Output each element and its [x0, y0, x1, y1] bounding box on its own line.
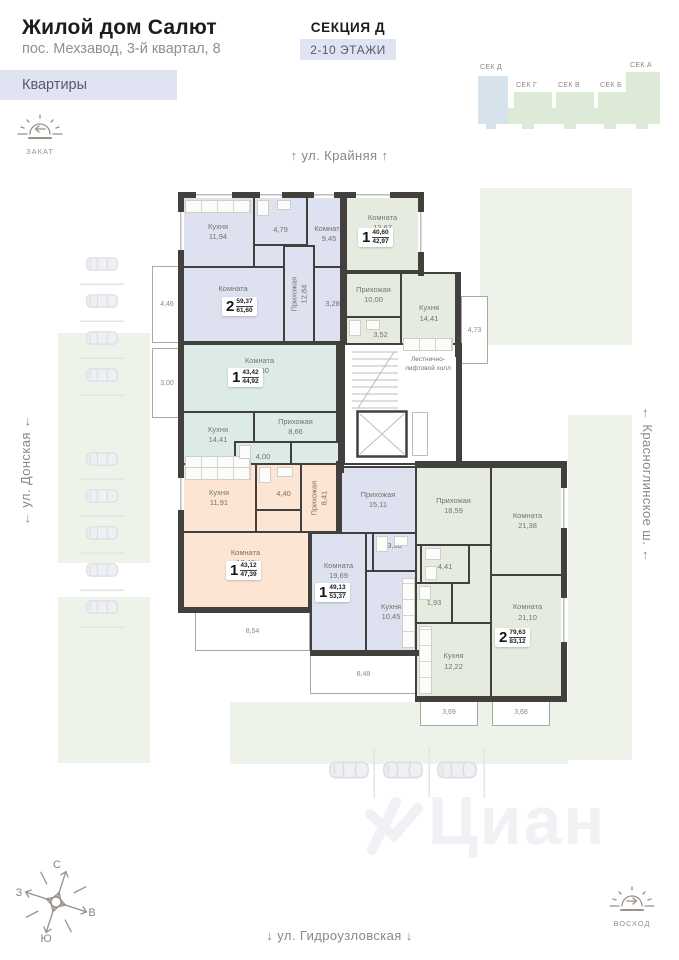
page-title: Жилой дом Салют — [22, 16, 217, 40]
window — [356, 192, 390, 198]
balcony: 4,73 — [461, 296, 488, 364]
compass-west-label: З — [16, 887, 23, 899]
car-icon — [85, 293, 119, 309]
street-bottom: ↓ ул. Гидроузловская ↓ — [0, 928, 679, 943]
minimap-notch — [522, 124, 534, 129]
minimap-notch — [604, 124, 616, 129]
floor-plan-page: Жилой дом Салют пос. Мехзавод, 3-й кварт… — [0, 0, 679, 960]
car-icon — [436, 760, 478, 780]
compass-north-label: С — [53, 859, 61, 871]
elevator-shaft — [412, 412, 428, 456]
toilet — [376, 536, 388, 552]
section-title: СЕКЦИЯ Д — [300, 20, 396, 35]
car-icon — [85, 525, 119, 541]
sections-minimap: СЕК Д СЕК Г СЕК В СЕК Б СЕК А — [470, 58, 670, 133]
window — [418, 212, 424, 252]
street-right: ← Красноглинское ш. ← — [635, 407, 655, 557]
toilet — [257, 200, 269, 216]
wall — [178, 192, 184, 613]
balcony: 8,54 — [195, 611, 310, 651]
room-hallway: Прихожая12,84 — [283, 245, 315, 343]
sunrise-icon — [608, 886, 656, 914]
landscape-area — [480, 188, 632, 345]
room-hallway: Прихожая10,00 — [345, 272, 402, 318]
down-arrow-icon: ↓ — [266, 928, 273, 943]
minimap-section-b-label: СЕК Б — [600, 82, 622, 89]
minimap-notch — [486, 124, 496, 129]
car-icon — [85, 488, 119, 504]
car-icon — [382, 760, 424, 780]
apartment-5-badge[interactable]: 1 49,1353,37 — [315, 583, 350, 602]
tab-apartments[interactable]: Квартиры — [0, 70, 177, 100]
sunset-icon — [16, 114, 64, 142]
wall — [338, 343, 344, 473]
compass-icon: С З В Ю — [12, 858, 100, 946]
minimap-section-v-label: СЕК В — [558, 82, 580, 89]
minimap-notch — [636, 124, 648, 129]
down-arrow-icon: ↓ — [406, 928, 413, 943]
wall — [178, 607, 312, 613]
toilet — [419, 586, 431, 600]
wall — [456, 343, 462, 468]
kitchen-counter — [185, 467, 251, 480]
minimap-section-g-label: СЕК Г — [516, 82, 537, 89]
minimap-section-a[interactable] — [626, 72, 660, 124]
kitchen-counter — [402, 578, 415, 648]
minimap-section-v[interactable] — [556, 92, 594, 124]
car-icon — [85, 451, 119, 467]
compass-east-label: В — [88, 907, 95, 919]
down-arrow-icon: ← — [18, 415, 33, 428]
down-arrow-icon: ← — [18, 512, 33, 525]
minimap-section-g[interactable] — [514, 92, 552, 124]
wall — [415, 461, 567, 467]
landscape-area — [568, 415, 632, 760]
sunrise-widget: ВОСХОД — [606, 886, 658, 928]
up-arrow-icon: ← — [640, 407, 655, 420]
toilet — [349, 320, 361, 336]
minimap-section-d-label: СЕК Д — [480, 64, 502, 71]
window — [314, 192, 334, 198]
apartment-2-badge[interactable]: 1 40,6042,97 — [358, 228, 393, 247]
car-icon — [85, 330, 119, 346]
wall — [336, 461, 342, 533]
window — [178, 478, 184, 510]
floors-badge: 2-10 ЭТАЖИ — [300, 39, 396, 60]
room-hallway: Прихожая15,11 — [338, 466, 418, 534]
staircase-icon — [350, 348, 400, 412]
sink — [394, 536, 408, 546]
elevator-icon — [356, 410, 408, 458]
street-left-label: ул. Донская — [18, 432, 33, 508]
page-address: пос. Мехзавод, 3-й квартал, 8 — [22, 41, 221, 57]
room-hallway: Прихожая8,66 — [253, 411, 338, 443]
minimap-notch — [564, 124, 576, 129]
up-arrow-icon: ← — [640, 549, 655, 562]
apartment-4-badge[interactable]: 1 43,1247,39 — [226, 561, 261, 580]
balcony: 3,68 — [492, 699, 550, 726]
balcony: 8,48 — [310, 654, 417, 694]
street-top: ↑ ул. Крайняя ↑ — [0, 148, 679, 163]
car-icon — [85, 599, 119, 615]
apartment-6-badge[interactable]: 2 79,6383,12 — [495, 628, 530, 647]
minimap-section-d[interactable] — [478, 76, 508, 124]
street-bottom-label: ул. Гидроузловская — [277, 928, 401, 943]
window — [561, 598, 567, 642]
room-hallway: Прихожая18,59 — [415, 466, 492, 546]
wall — [415, 696, 567, 702]
window — [561, 488, 567, 528]
car-icon — [85, 562, 119, 578]
stair-hall-label: Лестнично-лифтовой холл — [400, 356, 456, 374]
up-arrow-icon: ↑ — [291, 148, 298, 163]
compass-south-label: Ю — [40, 933, 51, 945]
room-bedroom: Комната21,38 — [490, 466, 565, 576]
car-icon — [328, 760, 370, 780]
window — [178, 212, 184, 250]
up-arrow-icon: ↑ — [382, 148, 389, 163]
street-right-label: Красноглинское ш. — [640, 424, 655, 545]
car-icon — [85, 256, 119, 272]
window — [260, 192, 282, 198]
apartment-1-badge[interactable]: 2 59,3761,60 — [222, 297, 257, 316]
balcony: 3,69 — [420, 699, 478, 726]
tab-apartments-label: Квартиры — [22, 77, 87, 93]
wall — [310, 650, 419, 656]
kitchen-counter — [185, 200, 251, 213]
kitchen-counter — [403, 338, 453, 351]
sink — [277, 467, 293, 477]
toilet — [259, 467, 271, 483]
toilet — [425, 566, 437, 580]
window — [196, 192, 232, 198]
sink — [366, 320, 380, 330]
sink — [277, 200, 291, 210]
wall — [340, 196, 346, 343]
sink — [425, 548, 441, 560]
street-left: ← ул. Донская ← — [18, 400, 38, 540]
room-hallway: Прихожая8,41 — [300, 463, 338, 533]
minimap-section-a-label: СЕК А — [630, 62, 652, 69]
toilet — [239, 445, 251, 459]
sunrise-label: ВОСХОД — [606, 919, 658, 928]
kitchen-counter — [419, 626, 432, 694]
car-icon — [85, 367, 119, 383]
apartment-3-badge[interactable]: 1 43,4244,92 — [228, 368, 263, 387]
street-top-label: ул. Крайняя — [302, 148, 378, 163]
